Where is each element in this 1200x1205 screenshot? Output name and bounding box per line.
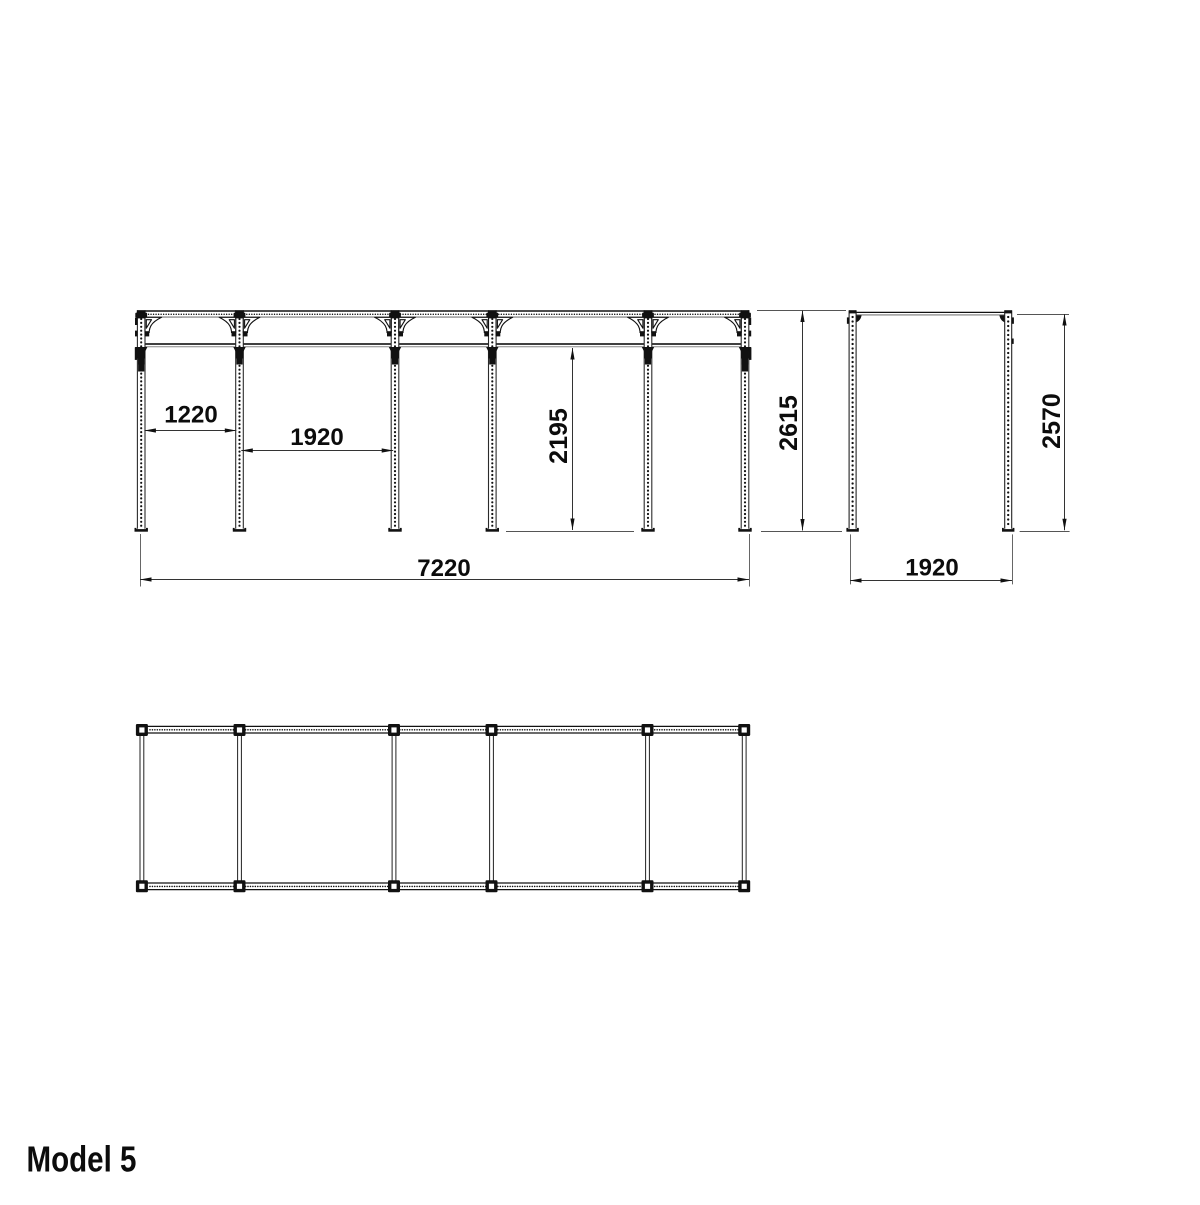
svg-text:7220: 7220 bbox=[417, 555, 470, 582]
svg-text:1220: 1220 bbox=[164, 402, 217, 429]
svg-text:2195: 2195 bbox=[545, 408, 573, 464]
svg-text:2615: 2615 bbox=[775, 395, 803, 451]
svg-text:2570: 2570 bbox=[1038, 393, 1066, 449]
svg-text:1920: 1920 bbox=[905, 554, 958, 581]
svg-text:1920: 1920 bbox=[290, 424, 343, 451]
svg-text:Model 5: Model 5 bbox=[27, 1140, 137, 1181]
